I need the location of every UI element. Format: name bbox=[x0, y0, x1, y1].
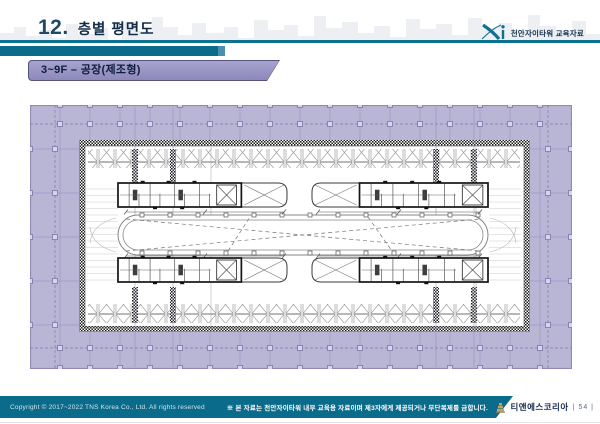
subtitle-ribbon: 3~9F – 공장(제조형) bbox=[28, 60, 280, 81]
header-underline-bar bbox=[0, 46, 218, 56]
title-text: 층별 평면도 bbox=[78, 18, 155, 39]
floor-plan-drawing bbox=[30, 105, 572, 369]
title-number: 12. bbox=[38, 16, 69, 40]
seal-icon bbox=[495, 401, 506, 413]
header-underline-step bbox=[218, 46, 225, 56]
slide: 12. 층별 평면도 천안자이타워 교육자료 3~9F – 공장(제조형) bbox=[0, 0, 600, 424]
bottom-hairline bbox=[0, 422, 600, 423]
footer-brand: 티앤에스코리아 | 54 | bbox=[495, 396, 594, 418]
floor-plan-panel bbox=[30, 105, 572, 369]
company-name: 티앤에스코리아 bbox=[510, 401, 568, 413]
notice-text: ※ 본 자료는 천안자이타워 내부 교육용 자료이며 제3자에게 제공되거나 무… bbox=[227, 396, 488, 418]
copyright-text: Copyright © 2017~2022 TNS Korea Co., Ltd… bbox=[10, 396, 205, 418]
header-underline-thin bbox=[0, 40, 600, 43]
page-number: | 54 | bbox=[573, 404, 594, 411]
page-title: 12. 층별 평면도 bbox=[38, 16, 154, 40]
subtitle-label: 3~9F – 공장(제조형) bbox=[41, 60, 141, 80]
brand-caption: 천안자이타워 교육자료 bbox=[511, 28, 584, 39]
